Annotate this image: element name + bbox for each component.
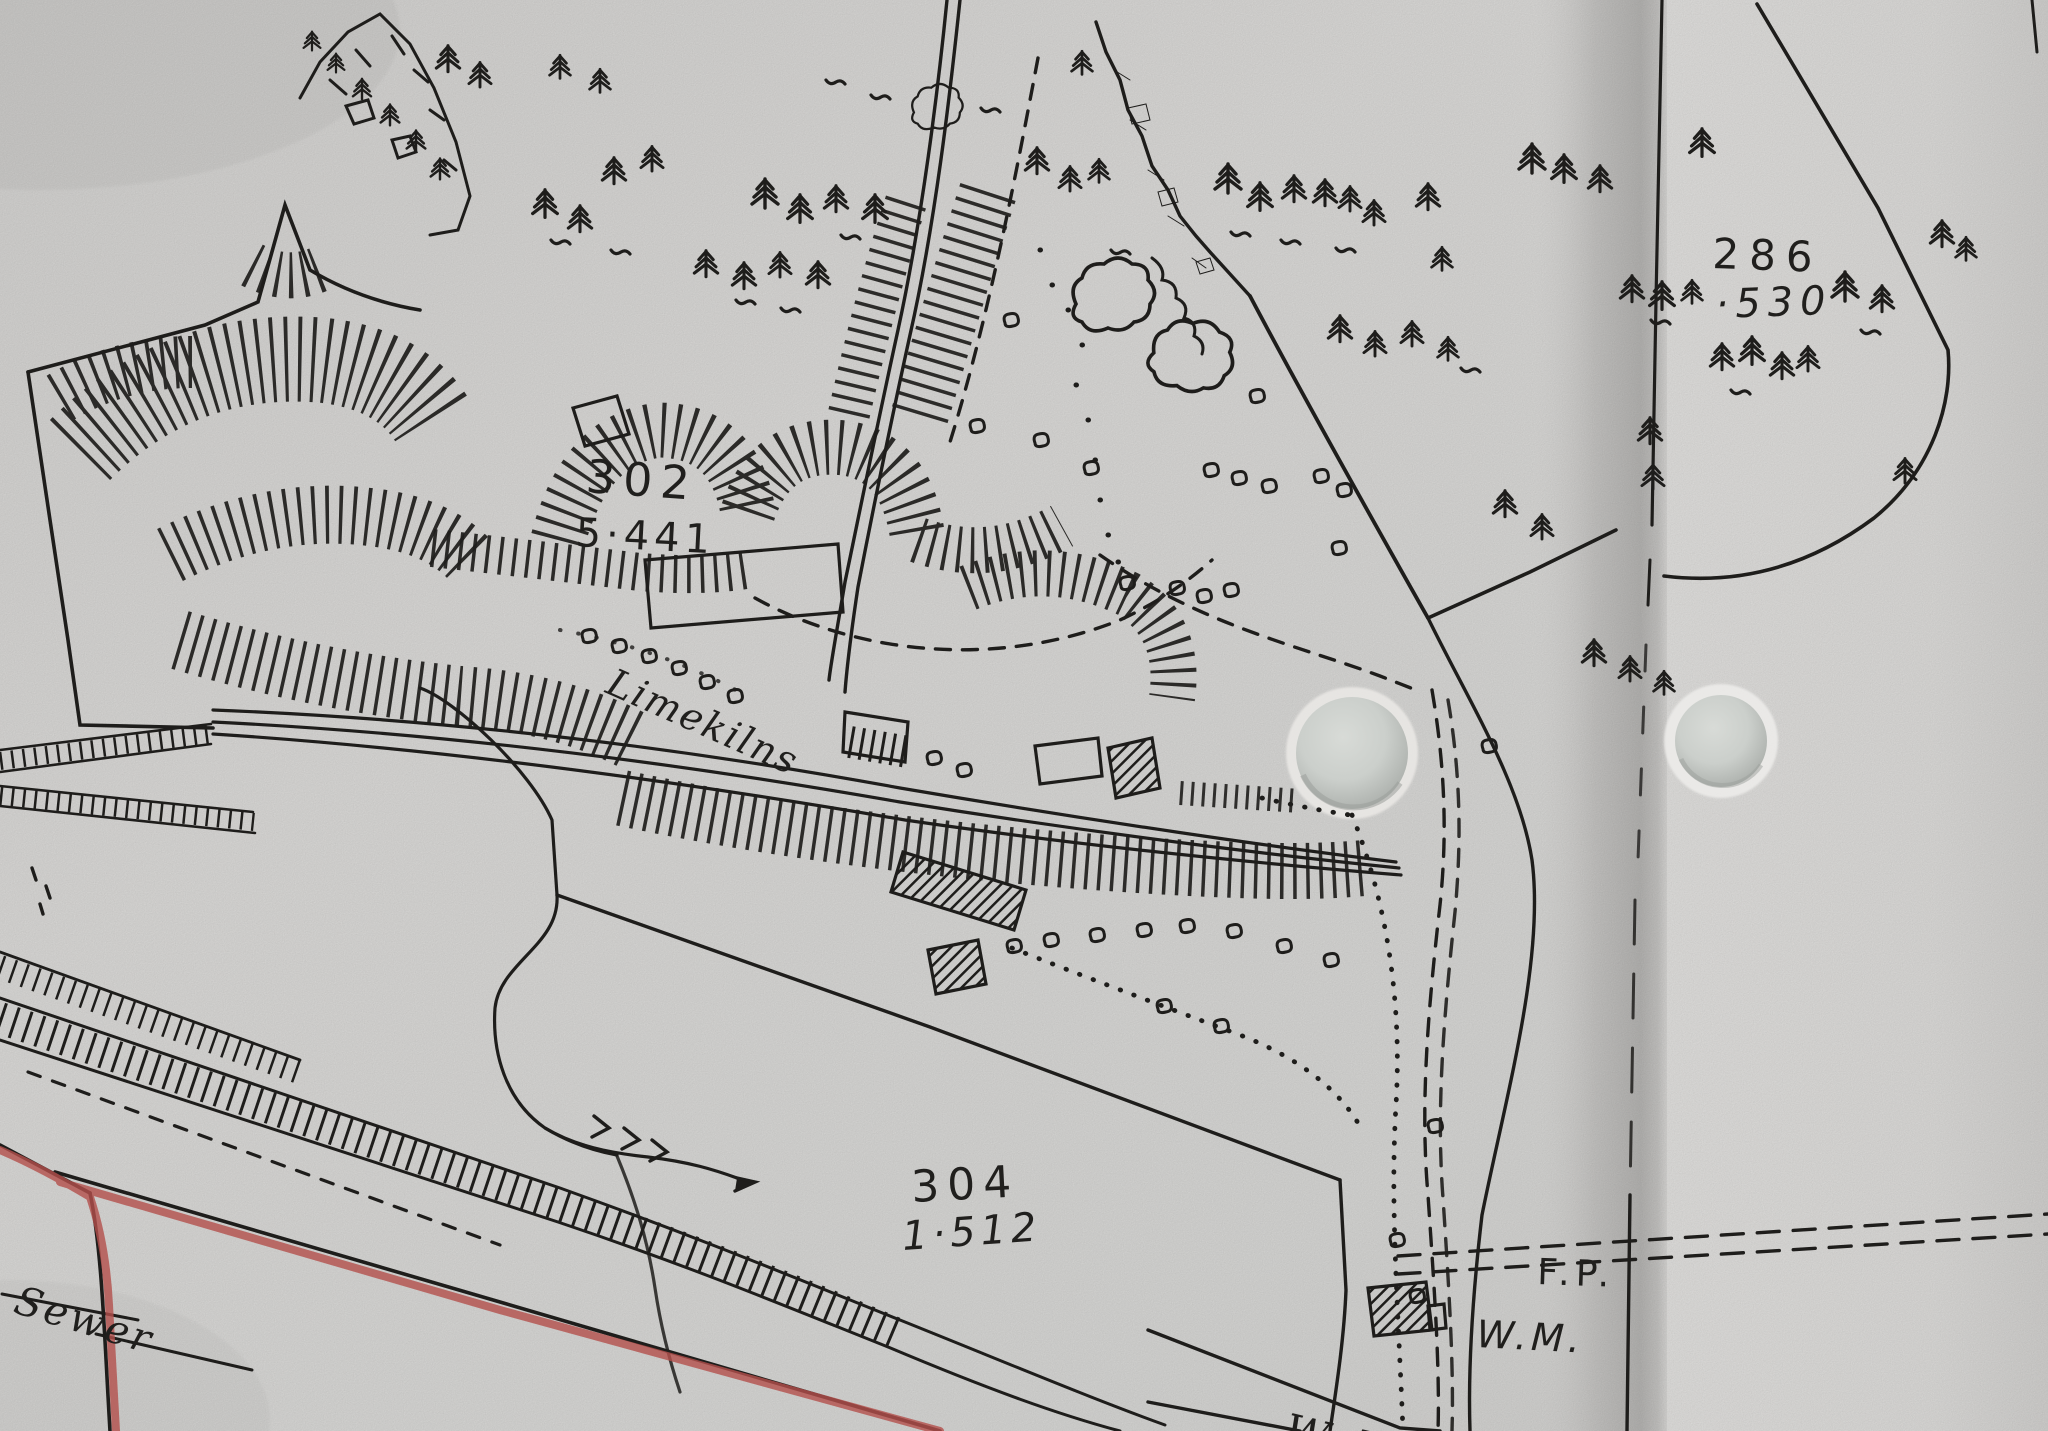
hatched-building: [1108, 738, 1160, 798]
scanned-map-sheet: 302 5·441 304 1·512 286 ·530 Limekilns S…: [0, 0, 2048, 1431]
hatched-building-small: [928, 940, 986, 994]
parcel-286-number: 286: [1712, 229, 1824, 282]
wall-marker-label: W.M.: [1476, 1312, 1586, 1362]
parcel-304-area: 1·512: [900, 1204, 1042, 1260]
punch-hole-left: [1286, 687, 1418, 819]
parcel-286-area: ·530: [1715, 278, 1834, 328]
parcel-304-number: 304: [910, 1156, 1021, 1213]
parcel-302-number: 302: [584, 449, 699, 511]
map-canvas: 302 5·441 304 1·512 286 ·530 Limekilns S…: [0, 0, 2048, 1431]
footpath-label: F.P.: [1537, 1252, 1616, 1296]
parcel-302-area: 5·441: [574, 510, 716, 563]
punch-hole-right: [1664, 684, 1778, 798]
